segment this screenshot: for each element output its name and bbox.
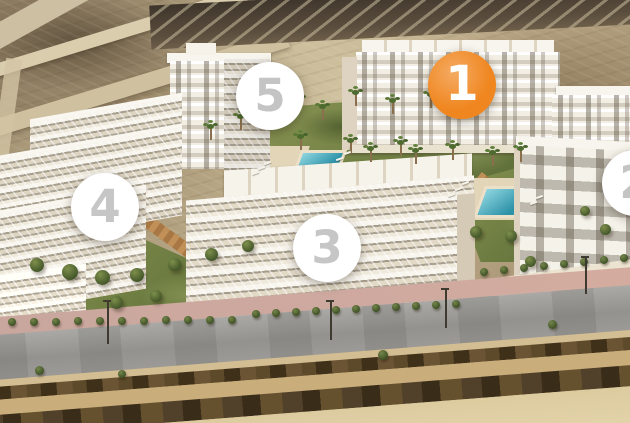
hedge-bush-icon	[8, 318, 16, 326]
palm-tree-icon	[400, 144, 402, 156]
round-tree-icon	[600, 224, 611, 235]
palm-tree-icon	[392, 102, 394, 114]
shrub-icon	[548, 320, 557, 329]
palm-tree-icon	[322, 108, 324, 120]
hedge-bush-icon	[30, 318, 38, 326]
hedge-bush-icon	[432, 301, 440, 309]
hedge-bush-icon	[480, 268, 488, 276]
round-tree-icon	[62, 264, 78, 280]
hedge-bush-icon	[560, 260, 568, 268]
hedge-bush-icon	[520, 264, 528, 272]
hedge-bush-icon	[252, 310, 260, 318]
aerial-render-scene: 1 2 3 4 5	[0, 0, 630, 423]
shrub-icon	[118, 370, 126, 378]
street-lamp-icon	[330, 300, 332, 340]
palm-tree-icon	[300, 138, 302, 150]
hedge-bush-icon	[372, 304, 380, 312]
round-tree-icon	[110, 296, 123, 309]
round-tree-icon	[505, 230, 517, 242]
building-5-roof-box	[186, 43, 216, 55]
round-tree-icon	[470, 226, 482, 238]
hedge-bush-icon	[452, 300, 460, 308]
building-marker-3[interactable]: 3	[293, 214, 361, 282]
shrub-icon	[35, 366, 44, 375]
round-tree-icon	[95, 270, 110, 285]
round-tree-icon	[168, 258, 181, 271]
palm-tree-icon	[370, 150, 372, 162]
building-marker-4[interactable]: 4	[71, 173, 139, 241]
palm-tree-icon	[210, 128, 212, 140]
hedge-bush-icon	[292, 308, 300, 316]
round-tree-icon	[30, 258, 44, 272]
marker-number: 5	[254, 73, 285, 118]
hedge-bush-icon	[118, 317, 126, 325]
round-tree-icon	[205, 248, 218, 261]
hedge-bush-icon	[332, 306, 340, 314]
hedge-bush-icon	[206, 316, 214, 324]
marker-number: 4	[89, 184, 120, 229]
palm-tree-icon	[415, 152, 417, 164]
round-tree-icon	[130, 268, 144, 282]
round-tree-icon	[150, 290, 162, 302]
hedge-bush-icon	[412, 302, 420, 310]
hedge-bush-icon	[620, 254, 628, 262]
round-tree-icon	[242, 240, 254, 252]
hedge-bush-icon	[312, 307, 320, 315]
shrub-icon	[378, 350, 388, 360]
palm-tree-icon	[452, 148, 454, 160]
hedge-bush-icon	[140, 317, 148, 325]
building-marker-1[interactable]: 1	[428, 51, 496, 119]
hedge-bush-icon	[540, 262, 548, 270]
hedge-bush-icon	[600, 256, 608, 264]
building-marker-5[interactable]: 5	[236, 62, 304, 130]
street-lamp-icon	[445, 288, 447, 328]
street-lamp-icon	[107, 300, 109, 344]
marker-number: 3	[311, 225, 342, 270]
hedge-bush-icon	[352, 305, 360, 313]
hedge-bush-icon	[228, 316, 236, 324]
palm-tree-icon	[492, 154, 494, 166]
hedge-bush-icon	[392, 303, 400, 311]
marker-number: 1	[445, 60, 478, 108]
street-lamp-icon	[585, 256, 587, 294]
palm-tree-icon	[240, 118, 242, 130]
hedge-bush-icon	[52, 318, 60, 326]
palm-tree-icon	[520, 150, 522, 162]
marker-number: 2	[619, 160, 630, 205]
palm-tree-icon	[355, 94, 357, 106]
hedge-bush-icon	[272, 309, 280, 317]
hedge-bush-icon	[500, 266, 508, 274]
round-tree-icon	[580, 206, 590, 216]
